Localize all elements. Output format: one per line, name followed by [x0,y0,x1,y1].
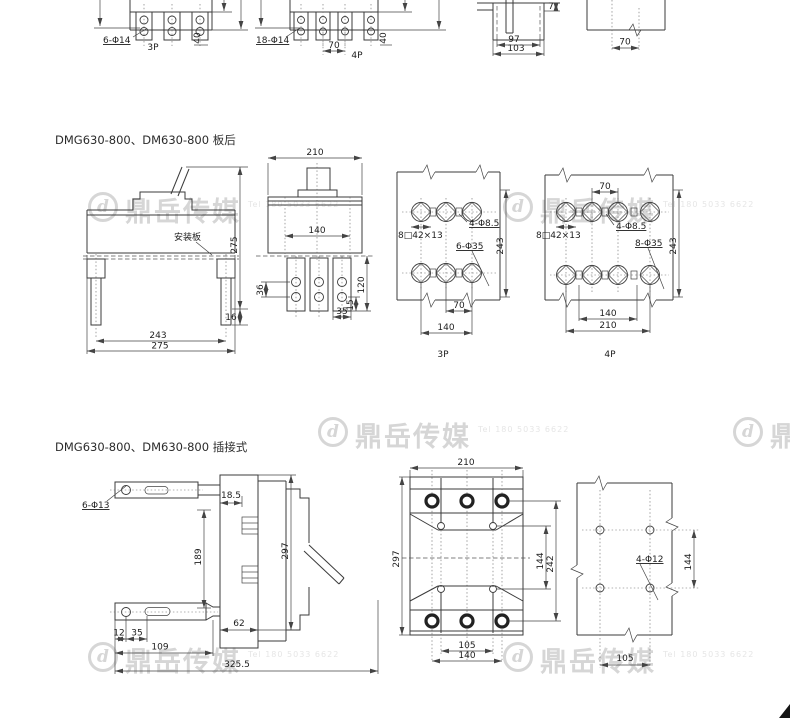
dim-70: 70 [599,182,611,192]
dim-144: 144 [684,553,694,570]
rear-mount-title: DMG630-800、DM630-800 板后 [55,133,236,147]
dim-109: 109 [151,643,168,653]
hole-note-4p: 18-Φ14 [256,36,290,46]
hole-note-large: 8-Φ35 [635,239,663,249]
pole-label-4p: 4P [351,51,363,61]
dim-105: 105 [616,654,633,664]
mounting-plate-note: 安装板 [174,231,201,243]
rear-side-view: 210 140 36 15 120 35 [256,148,374,320]
dim-40: 40 [193,32,203,44]
dim-36: 36 [256,284,266,296]
pole-label-4p: 4P [604,350,616,360]
rear-drill-pattern-4p: 70 8□42×13 4-Φ8.5 8-Φ35 243 140 210 4P [536,168,683,360]
dim-35: 35 [131,629,142,639]
dim-210: 210 [306,148,323,158]
dim-243: 243 [496,237,506,254]
dim-297: 297 [281,542,291,559]
dim-140: 140 [458,651,475,661]
top-3p-terminal-view: 6-Φ14 3P 40 [94,0,248,53]
dim-140: 140 [599,309,616,319]
dim-103: 103 [507,44,524,54]
top-side-profile-view: 7 97 103 [477,0,560,56]
top-panel-cutout-view: 70 [587,0,665,50]
dim-210: 210 [599,321,616,331]
pole-label-3p: 3P [437,350,449,360]
plugin-side-view: 6-Φ13 18.5 189 297 62 1 [82,475,378,674]
hole-note-6-13: 6-Φ13 [82,501,110,511]
dim-70: 70 [453,301,465,311]
dim-16: 16 [225,313,237,323]
dim-210: 210 [457,458,474,468]
plugin-front-view: 210 242 144 297 105 [392,458,561,661]
hole-note-large: 6-Φ35 [456,242,484,252]
dim-120: 120 [357,276,367,293]
hole-note-3p: 6-Φ14 [103,36,131,46]
drawings-layer: 6-Φ14 3P 40 18-Φ14 70 4P 40 [0,0,790,718]
dim-7: 7 [548,2,554,12]
dim-243: 243 [149,331,166,341]
rear-drill-pattern-3p: 8□42×13 4-Φ8.5 6-Φ35 243 70 140 3P [397,165,510,360]
dim-243: 243 [669,237,679,254]
dim-70: 70 [328,41,340,51]
catalog-page: d 鼎岳传媒 Tel 180 5033 6622 d 鼎岳传媒 Tel 180 … [0,0,790,718]
plug-in-title: DMG630-800、DM630-800 插接式 [55,440,248,454]
slot-note: 8□42×13 [398,231,443,241]
dim-35: 35 [336,307,347,317]
hole-note-4-12: 4-Φ12 [636,555,664,565]
hole-note-small: 4-Φ8.5 [616,222,646,232]
dim-189: 189 [194,548,204,565]
top-4p-terminal-view: 18-Φ14 70 4P 40 [255,0,446,61]
dim-105: 105 [458,641,475,651]
dim-12: 12 [113,629,124,639]
hole-note-small: 4-Φ8.5 [469,219,499,229]
dim-140: 140 [308,226,325,236]
dim-144: 144 [536,552,546,569]
slot-note: 8□42×13 [536,231,581,241]
dim-62: 62 [233,619,244,629]
dim-325-5: 325.5 [224,660,250,670]
dim-275-height: 275 [230,236,240,253]
dim-140: 140 [437,323,454,333]
plugin-panel-view: 4-Φ12 144 105 [571,476,700,668]
dim-18-5: 18.5 [221,491,241,501]
dim-40: 40 [379,32,389,44]
dim-242: 242 [546,555,556,572]
page-corner-mark [779,704,790,718]
dim-297: 297 [392,550,402,567]
rear-front-view: 安装板 243 275 275 16 [83,167,248,354]
pole-label-3p: 3P [147,43,159,53]
dim-70: 70 [619,38,631,48]
dim-275-width: 275 [151,342,168,352]
